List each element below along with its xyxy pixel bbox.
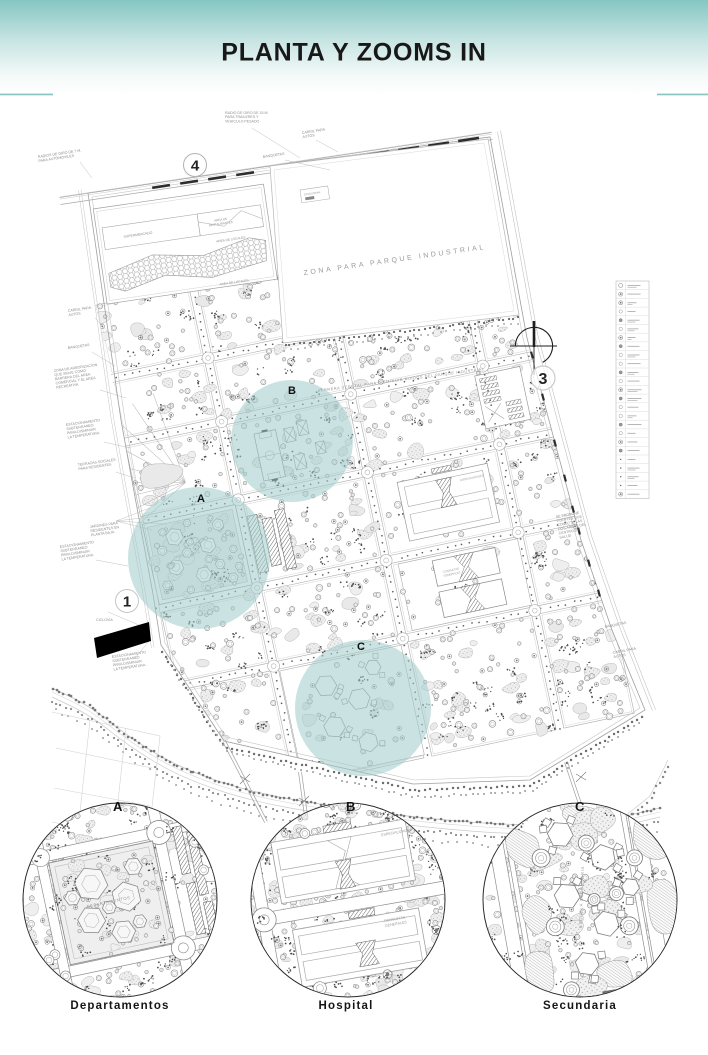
- svg-text:A: A: [197, 493, 205, 505]
- svg-text:RADIO DE GIRO DE 15 M.PARA TRA: RADIO DE GIRO DE 15 M.PARA TRAILERES YVE…: [225, 111, 269, 123]
- svg-text:A: A: [113, 799, 123, 814]
- svg-text:PLANTA Y ZOOMS IN: PLANTA Y ZOOMS IN: [221, 39, 486, 67]
- svg-text:B: B: [346, 799, 355, 814]
- svg-text:ESTACIONAMIENTOSUBTERRANEOPARA: ESTACIONAMIENTOSUBTERRANEOPARA DISMINUIR…: [60, 540, 97, 561]
- svg-text:BANQUETAS: BANQUETAS: [68, 343, 91, 350]
- svg-text:Departamentos: Departamentos: [70, 1000, 169, 1012]
- svg-text:Hospital: Hospital: [319, 1000, 374, 1012]
- svg-text:BANQUETAS: BANQUETAS: [263, 152, 286, 159]
- svg-text:RADIOS DE GIRO DE 7 M.PARA AUT: RADIOS DE GIRO DE 7 M.PARA AUTOMOVILES: [38, 148, 83, 163]
- svg-text:Secundaria: Secundaria: [543, 1000, 617, 1012]
- svg-text:CARRIL PARAAUTOS: CARRIL PARAAUTOS: [68, 306, 93, 317]
- svg-text:ESTACIONAMIENTOSUBTERRANEOPARA: ESTACIONAMIENTOSUBTERRANEOPARA DISMINUIR…: [112, 650, 149, 671]
- svg-text:4: 4: [191, 158, 200, 175]
- svg-text:1: 1: [123, 594, 131, 611]
- svg-text:CARRIL PARAAUTOS: CARRIL PARAAUTOS: [302, 127, 327, 139]
- svg-text:3: 3: [539, 371, 548, 388]
- svg-text:B: B: [288, 385, 296, 397]
- svg-text:JARDINES PARARESIDENTES ENPL: JARDINES PARARESIDENTES ENPLANTA BAJA: [90, 521, 121, 537]
- svg-text:C: C: [357, 641, 365, 653]
- svg-text:ESTACIONAMIENTOSUBTERRANEOPARA: ESTACIONAMIENTOSUBTERRANEOPARA DISMINUIR…: [66, 418, 103, 439]
- svg-text:ZONA DE ARBORIZACIONQUE SIRVE: ZONA DE ARBORIZACIONQUE SIRVE COMOBARRER…: [54, 363, 101, 390]
- svg-text:CICLOVIA: CICLOVIA: [96, 618, 113, 622]
- svg-text:TERRAZAS SOCIALESPARA RESIDE: TERRAZAS SOCIALESPARA RESIDENTES: [78, 458, 118, 472]
- svg-text:C: C: [575, 799, 585, 814]
